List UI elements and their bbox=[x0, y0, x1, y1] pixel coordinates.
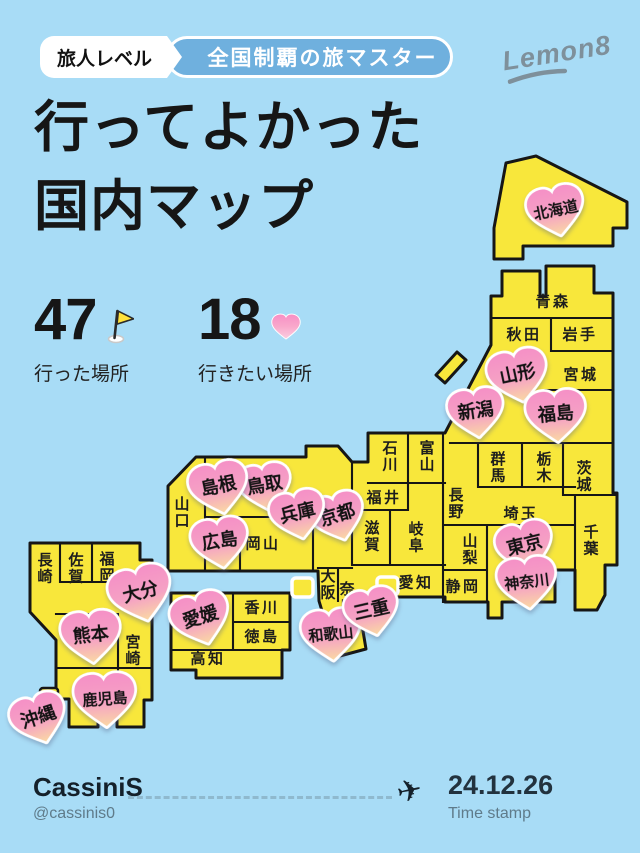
prefecture-label-長崎: 長崎 bbox=[37, 552, 53, 586]
prefecture-label-石川: 石川 bbox=[381, 440, 397, 474]
level-label-text: 旅人レベル bbox=[57, 44, 165, 71]
prefecture-label-山口: 山口 bbox=[174, 496, 189, 530]
prefecture-label-山梨: 山梨 bbox=[461, 533, 477, 567]
japan-map: 青森秋田岩手宮城群馬栃木茨城埼玉千葉山梨長野静岡石川富山福井滋賀岐阜愛知大阪奈良… bbox=[0, 0, 640, 853]
timestamp-date: 24.12.26 bbox=[448, 772, 553, 799]
prefecture-label-茨城: 茨城 bbox=[576, 460, 591, 494]
prefecture-label-大阪: 大阪 bbox=[320, 567, 336, 602]
prefecture-label-岩手: 岩手 bbox=[561, 325, 597, 343]
level-label-ribbon: 旅人レベル bbox=[40, 36, 182, 78]
prefecture-label-徳島: 徳島 bbox=[243, 627, 279, 645]
footer: CassiniS @cassinis0 ✈ 24.12.26 Time stam… bbox=[0, 772, 640, 836]
user-block: CassiniS @cassinis0 bbox=[33, 774, 143, 823]
prefecture-label-秋田: 秋田 bbox=[506, 325, 541, 343]
lemon8-travel-map-card: 全国制覇の旅マスター 旅人レベル Lemon8 行ってよかった 国内マップ 47 bbox=[0, 0, 640, 853]
prefecture-label-宮崎: 宮崎 bbox=[125, 633, 140, 668]
prefecture-label-栃木: 栃木 bbox=[535, 450, 552, 485]
awaji-island-marker bbox=[292, 578, 313, 597]
sado-island bbox=[436, 352, 466, 383]
prefecture-label-滋賀: 滋賀 bbox=[363, 519, 379, 554]
prefecture-label-佐賀: 佐賀 bbox=[67, 551, 83, 586]
prefecture-label-福井: 福井 bbox=[365, 488, 401, 506]
traveler-level-badge: 全国制覇の旅マスター 旅人レベル bbox=[40, 36, 455, 78]
username: CassiniS bbox=[33, 774, 143, 800]
prefecture-label-長野: 長野 bbox=[448, 487, 464, 521]
prefecture-label-青森: 青森 bbox=[535, 292, 570, 310]
level-title-pill: 全国制覇の旅マスター bbox=[166, 36, 453, 78]
airplane-icon: ✈ bbox=[394, 772, 426, 811]
prefecture-label-香川: 香川 bbox=[244, 598, 279, 616]
svg-text:鹿児島: 鹿児島 bbox=[82, 688, 128, 709]
svg-text:熊本: 熊本 bbox=[72, 622, 110, 647]
prefecture-label-宮城: 宮城 bbox=[563, 365, 598, 383]
prefecture-label-高知: 高知 bbox=[190, 649, 225, 667]
level-title-text: 全国制覇の旅マスター bbox=[182, 42, 438, 72]
prefecture-label-静岡: 静岡 bbox=[445, 577, 480, 595]
prefecture-label-岡山: 岡山 bbox=[245, 535, 280, 552]
prefecture-label-岐阜: 岐阜 bbox=[408, 520, 424, 555]
prefecture-label-富山: 富山 bbox=[419, 439, 434, 474]
heart-badge-沖縄[interactable]: 沖縄 bbox=[6, 688, 72, 749]
prefecture-label-千葉: 千葉 bbox=[582, 524, 599, 558]
dashed-flight-line bbox=[128, 796, 392, 799]
prefecture-label-群馬: 群馬 bbox=[490, 450, 505, 485]
user-handle: @cassinis0 bbox=[33, 805, 143, 823]
date-block: 24.12.26 Time stamp bbox=[448, 772, 553, 823]
prefecture-label-愛知: 愛知 bbox=[398, 573, 433, 591]
timestamp-label: Time stamp bbox=[448, 805, 553, 823]
svg-text:福島: 福島 bbox=[536, 401, 575, 425]
